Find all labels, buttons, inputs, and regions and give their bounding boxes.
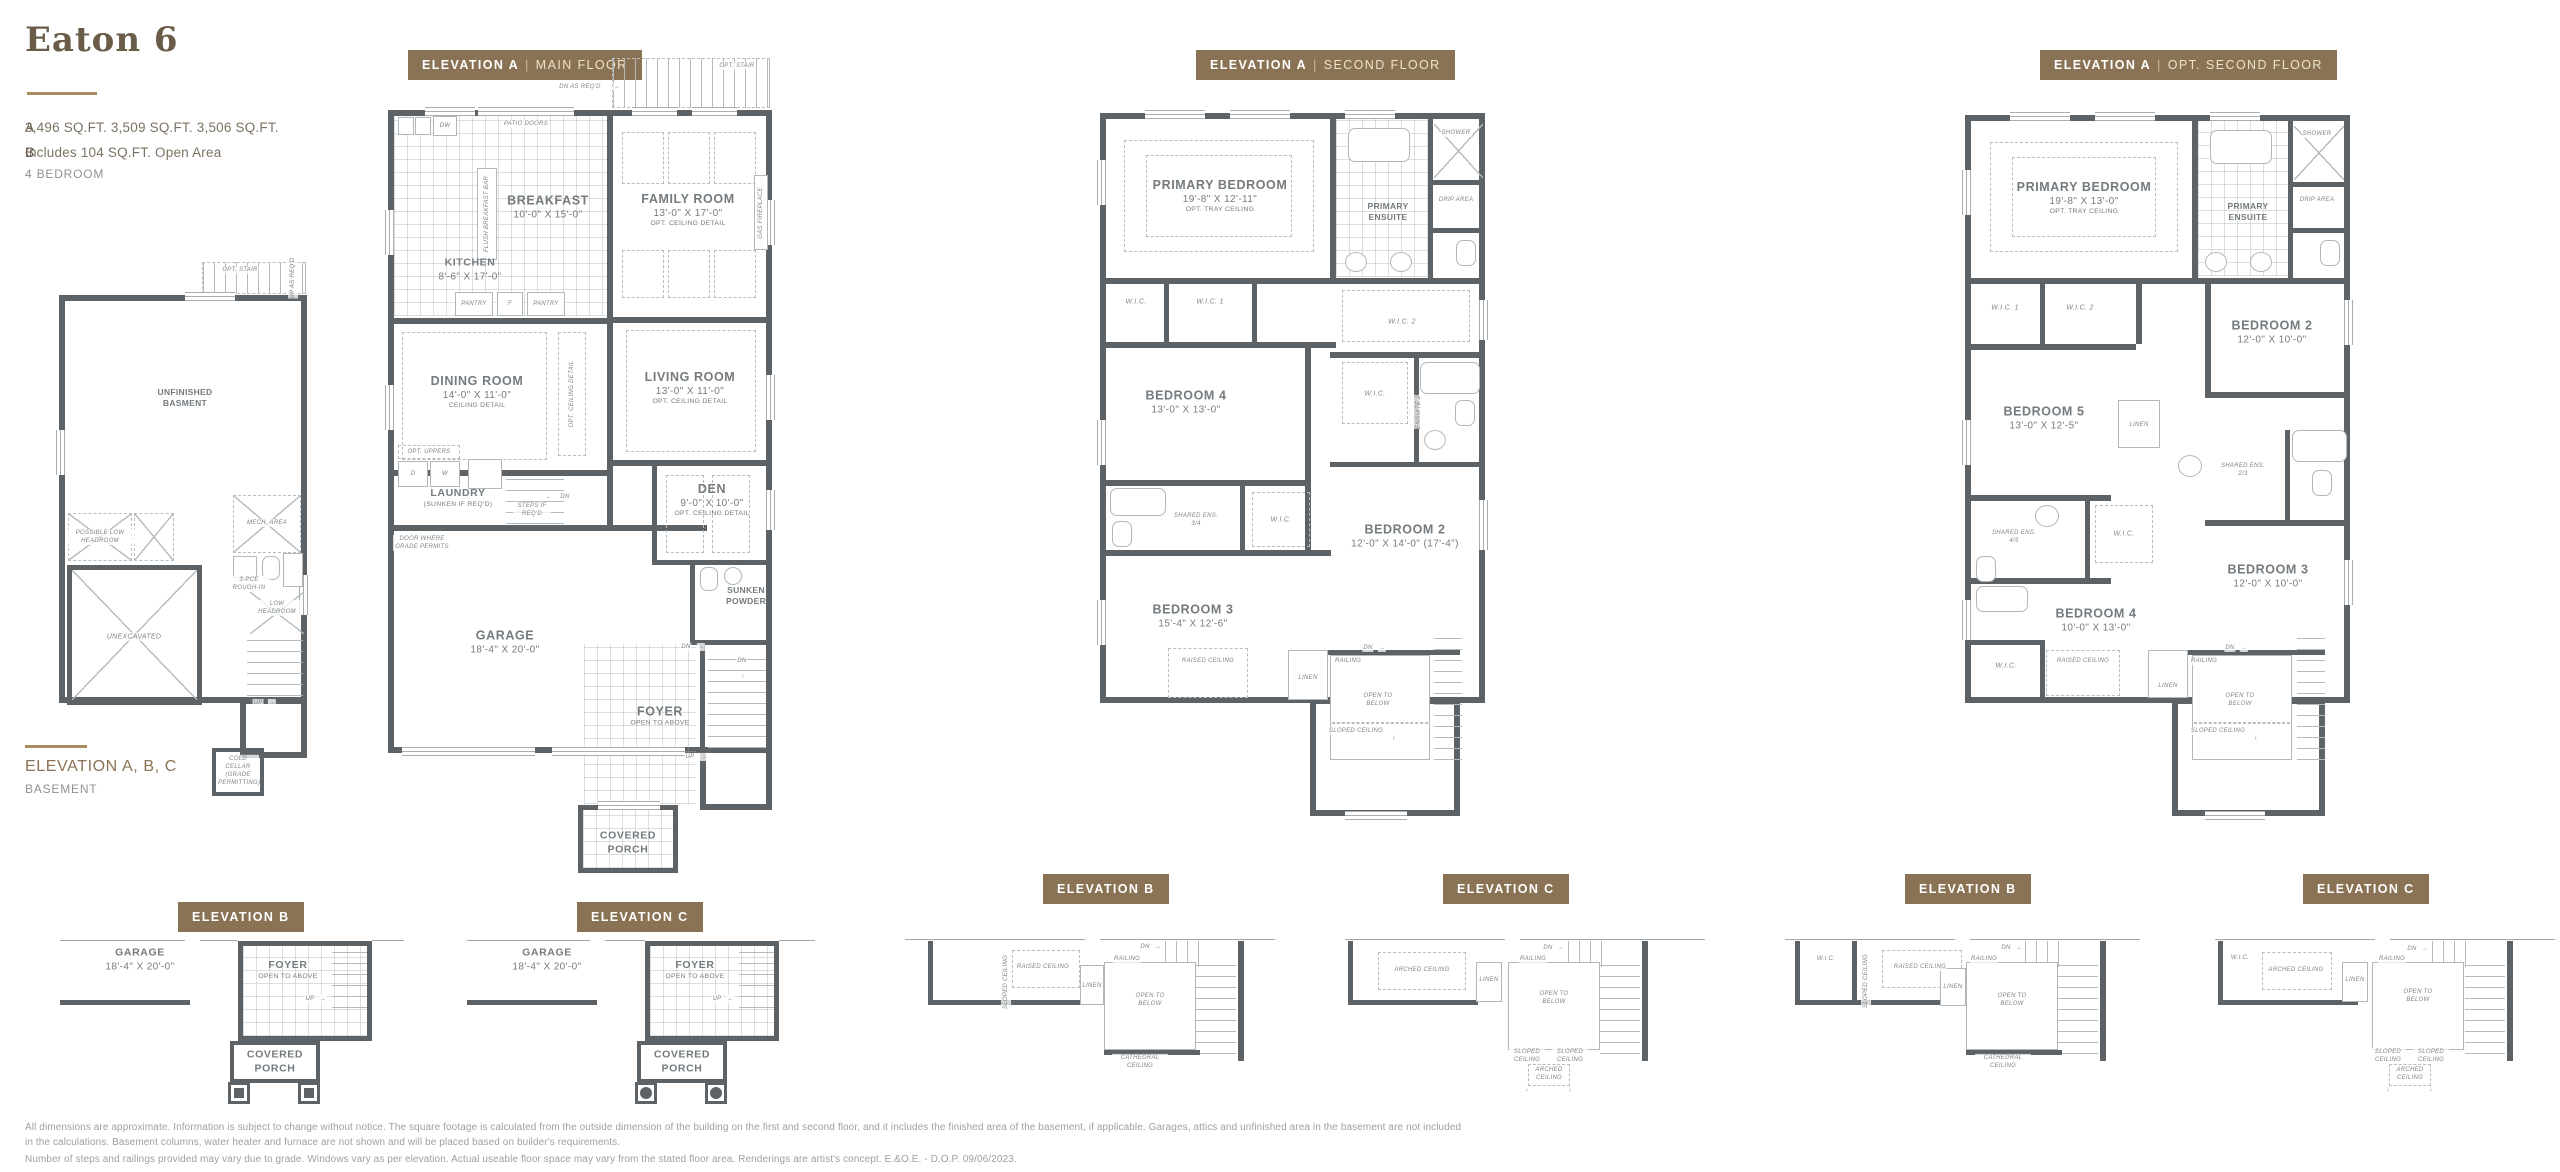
wall bbox=[1240, 486, 1245, 553]
toilet-icon bbox=[1455, 400, 1475, 426]
low-headroom-hatch bbox=[134, 513, 174, 561]
room-dims: 10'-0" X 13'-0" bbox=[2055, 622, 2136, 635]
room-den: DEN9'-0" X 10'-0"OPT. CEILING DETAIL bbox=[674, 481, 749, 519]
wic1-label: W.I.C. 1 bbox=[1990, 303, 2019, 312]
drip-area-label: DRIP AREA bbox=[2299, 196, 2336, 204]
title-divider bbox=[27, 92, 97, 95]
drip-area-label: DRIP AREA bbox=[1438, 196, 1475, 204]
room-note: OPT. CEILING DETAIL bbox=[674, 510, 749, 519]
arrow-right-icon: → bbox=[613, 83, 621, 91]
linen-label: LINEN bbox=[1297, 674, 1318, 682]
ceiling-coffer bbox=[714, 132, 756, 184]
railing-label: RAILING bbox=[2378, 955, 2406, 963]
wall bbox=[2218, 941, 2223, 1003]
room-name: BEDROOM 4 bbox=[1145, 387, 1226, 403]
washer-label: W bbox=[441, 470, 449, 478]
spec-b-value: 3,509 SQ.FT. bbox=[111, 120, 193, 135]
linen-top-label: LINEN bbox=[2128, 421, 2149, 429]
raised-ceiling-label: RAISED CEILING bbox=[2056, 657, 2110, 665]
spec-c-label: C bbox=[25, 141, 35, 166]
wall bbox=[60, 1000, 190, 1005]
arrow-down-icon: ↓ bbox=[1391, 733, 1397, 742]
garage-door bbox=[552, 747, 685, 756]
open-below-label: OPEN TO BELOW bbox=[1350, 692, 1406, 708]
room-name: GARAGE bbox=[105, 947, 174, 961]
up-label: UP bbox=[253, 699, 264, 707]
room-name: DEN bbox=[674, 481, 749, 497]
ground-line bbox=[60, 940, 185, 941]
raised-ceiling-box bbox=[1168, 648, 1248, 698]
window bbox=[185, 292, 235, 301]
wall bbox=[928, 941, 933, 1003]
page-title: Eaton 6 bbox=[25, 20, 179, 60]
ceiling-coffer bbox=[668, 132, 710, 184]
steps-label: STEPS IF REQ'D bbox=[513, 502, 551, 518]
room-laundry: LAUNDRY(SUNKEN IF REQ'D) bbox=[424, 487, 493, 509]
sink-icon bbox=[2035, 505, 2059, 527]
room-garage: GARAGE18'-4" X 20'-0" bbox=[512, 947, 581, 974]
room-note: OPT. CEILING DETAIL bbox=[645, 398, 736, 407]
wall bbox=[1348, 1000, 1478, 1005]
wall bbox=[1106, 550, 1331, 556]
closet-box bbox=[1342, 290, 1470, 342]
window bbox=[385, 210, 394, 255]
caption-elevations: ELEVATION A, B, C bbox=[25, 758, 177, 776]
low-headroom-label: LOW HEADROOM bbox=[254, 600, 300, 616]
wic-low-label: W.I.C. bbox=[1995, 661, 2018, 670]
wall bbox=[394, 525, 707, 531]
room-dims: 18'-4" X 20'-0" bbox=[470, 644, 539, 657]
sloped-ceiling-label: SLOPED CEILING bbox=[1552, 1048, 1588, 1064]
disclaimer-paragraph: All dimensions are approximate. Informat… bbox=[25, 1120, 1465, 1150]
room-name: LIVING ROOM bbox=[645, 369, 736, 385]
wall bbox=[1852, 941, 1857, 1003]
wall bbox=[652, 560, 772, 565]
toilet-icon bbox=[1112, 521, 1132, 547]
dn-label: DN bbox=[2224, 644, 2235, 652]
wall bbox=[2288, 228, 2350, 233]
wall bbox=[1106, 278, 1479, 284]
dryer-label: D bbox=[410, 470, 417, 478]
unexcavated-label: UNEXCAVATED bbox=[106, 632, 163, 641]
entry-door bbox=[598, 801, 660, 810]
arrow-right-icon: → bbox=[726, 995, 734, 1003]
room-name: FOYER bbox=[665, 959, 724, 973]
room-name: PRIMARY BEDROOM bbox=[1153, 177, 1288, 193]
room-name: BEDROOM 3 bbox=[2227, 561, 2308, 577]
wall bbox=[1252, 284, 1257, 344]
square-footage: A 3,496 SQ.FT. B 3,509 SQ.FT. C 3,506 SQ… bbox=[25, 116, 279, 166]
arched-ceiling-label: ARCHED CEILING bbox=[2392, 1066, 2428, 1082]
stairs bbox=[2058, 958, 2098, 1054]
dn-label: DN bbox=[736, 657, 747, 665]
cathedral-ceiling-label: CATHEDRAL CEILING bbox=[1112, 1054, 1168, 1070]
toilet-icon bbox=[1976, 556, 1996, 582]
arched-ceiling-label: ARCHED CEILING bbox=[1531, 1066, 1567, 1082]
spec-a-value: 3,496 SQ.FT. bbox=[25, 120, 107, 135]
arrow-down-icon: ↓ bbox=[2385, 1086, 2390, 1094]
room-note: OPEN TO ABOVE bbox=[665, 972, 724, 981]
wic1-label: W.I.C. 1 bbox=[1195, 297, 1224, 306]
wall bbox=[2085, 495, 2090, 580]
badge-elevation-c-second: ELEVATION C bbox=[1443, 874, 1569, 904]
room-name: FAMILY ROOM bbox=[641, 191, 734, 207]
room-note: OPT. TRAY CEILING bbox=[2017, 208, 2152, 217]
room-name: COVERED PORCH bbox=[642, 1048, 722, 1075]
wall bbox=[1164, 284, 1169, 344]
room-dims: 13'-0" X 12'-5" bbox=[2003, 420, 2084, 433]
bathtub-icon bbox=[283, 553, 303, 587]
wall bbox=[1795, 941, 1800, 1003]
wic-low-label: W.I.C. bbox=[1270, 515, 1293, 524]
up-label: UP bbox=[685, 753, 696, 761]
window bbox=[56, 430, 65, 475]
bathtub-icon bbox=[1976, 586, 2028, 612]
stairs bbox=[739, 946, 774, 1008]
patio-door bbox=[478, 107, 574, 116]
wall bbox=[2288, 121, 2293, 278]
dn-label: DN bbox=[1542, 944, 1553, 952]
ground-line bbox=[1520, 939, 1705, 940]
room-name: PRIMARY ENSUITE bbox=[2220, 201, 2276, 223]
room-kitchen: KITCHEN8'-6" X 17'-0" bbox=[438, 257, 501, 284]
wall bbox=[613, 460, 772, 466]
room-name: BEDROOM 3 bbox=[1152, 601, 1233, 617]
badge-elevation-c-opt: ELEVATION C bbox=[2303, 874, 2429, 904]
badge-elevation-c-main: ELEVATION C bbox=[577, 902, 703, 932]
sink-icon bbox=[1390, 252, 1412, 272]
ground-line bbox=[1970, 939, 2140, 940]
ceiling-coffer bbox=[622, 250, 664, 298]
room-dims: 9'-0" X 10'-0" bbox=[674, 497, 749, 510]
window bbox=[1345, 811, 1407, 820]
ground-line bbox=[1785, 939, 1955, 940]
stairs bbox=[332, 946, 367, 1008]
column-core bbox=[234, 1088, 244, 1098]
opt-ceiling-label: OPT. CEILING DETAIL bbox=[567, 360, 577, 427]
wic-label: W.I.C. bbox=[1125, 297, 1148, 306]
room-dims: 12'-0" X 14'-0" (17'-4") bbox=[1351, 538, 1459, 551]
bathtub-icon bbox=[1420, 362, 1480, 394]
opt-uppers-label: OPT. UPPERS bbox=[406, 448, 451, 456]
sloped-ceiling-label: SLOPED CEILING bbox=[1861, 954, 1871, 1008]
mech-area-label: MECH. AREA bbox=[246, 519, 288, 527]
room-note: OPT. CEILING DETAIL bbox=[641, 220, 734, 229]
sink-icon bbox=[2178, 455, 2202, 477]
up-label: UP bbox=[305, 995, 316, 1003]
bathtub-icon bbox=[1110, 488, 1166, 516]
open-area-note: Includes 104 SQ.FT. Open Area bbox=[25, 145, 221, 160]
wall bbox=[1971, 278, 2344, 284]
ceiling-coffer bbox=[668, 250, 710, 298]
arrow-right-icon: → bbox=[2015, 944, 2023, 952]
window bbox=[632, 107, 677, 116]
linen-label: LINEN bbox=[1942, 983, 1963, 991]
wall bbox=[1330, 352, 1485, 358]
sink-icon bbox=[415, 117, 431, 135]
wic-label: W.I.C. bbox=[1816, 955, 1836, 963]
room-dims: 19'-8" X 13'-0" bbox=[2017, 195, 2152, 208]
room-bed3: BEDROOM 312'-0" X 10'-0" bbox=[2227, 561, 2308, 590]
door-grade-label: DOOR WHERE GRADE PERMITS bbox=[393, 535, 451, 551]
toilet-icon bbox=[1456, 240, 1476, 266]
dn-label: DN bbox=[2000, 944, 2011, 952]
window bbox=[1145, 110, 1205, 119]
window bbox=[766, 375, 775, 420]
room-name: BEDROOM 2 bbox=[2231, 317, 2312, 333]
room-powder: SUNKEN POWDER bbox=[721, 585, 771, 607]
arrow-right-icon: → bbox=[268, 699, 276, 707]
room-dims: 15'-4" X 12'-6" bbox=[1152, 618, 1233, 631]
pantry-label: PANTRY bbox=[532, 300, 559, 308]
ground-line bbox=[2215, 939, 2375, 940]
room-covered-porch: COVERED PORCH bbox=[588, 829, 668, 856]
room-name: COVERED PORCH bbox=[235, 1048, 315, 1075]
room-living: LIVING ROOM13'-0" X 11'-0"OPT. CEILING D… bbox=[645, 369, 736, 407]
porch-column-icon bbox=[635, 1082, 657, 1104]
arched-ceiling-label: ARCHED CEILING bbox=[2267, 966, 2324, 974]
arrow-left-icon: ← bbox=[545, 493, 553, 501]
badge-elevation: ELEVATION A bbox=[1210, 58, 1307, 72]
sloped-ceiling-line bbox=[2194, 722, 2290, 724]
arrow-down-icon: ↓ bbox=[2253, 733, 2259, 742]
badge-main-floor: ELEVATION A|MAIN FLOOR bbox=[408, 50, 642, 80]
room-note: OPEN TO ABOVE bbox=[630, 720, 689, 729]
wall bbox=[1428, 119, 1433, 279]
open-below-label: OPEN TO BELOW bbox=[2212, 692, 2268, 708]
wall bbox=[467, 1000, 597, 1005]
shared-ens-label: SHARED ENS. 3/4 bbox=[1172, 512, 1220, 528]
window bbox=[425, 107, 475, 116]
stairs bbox=[247, 632, 303, 696]
arrow-right-icon: → bbox=[1378, 644, 1386, 652]
arrow-right-icon: → bbox=[2421, 945, 2429, 953]
room-name: BEDROOM 4 bbox=[2055, 605, 2136, 621]
bathtub-icon bbox=[2292, 430, 2347, 462]
column-core bbox=[640, 1087, 652, 1099]
room-dims: 13'-0" X 17'-0" bbox=[641, 207, 734, 220]
wall bbox=[1106, 480, 1311, 486]
wall bbox=[394, 318, 607, 324]
badge-second-floor: ELEVATION A|SECOND FLOOR bbox=[1196, 50, 1455, 80]
shared-ens23-label: SHARED ENS. 2/3 bbox=[2218, 462, 2268, 478]
badge-elevation-b-main: ELEVATION B bbox=[178, 902, 304, 932]
room-family: FAMILY ROOM13'-0" X 17'-0"OPT. CEILING D… bbox=[641, 191, 734, 229]
wall bbox=[1238, 941, 1244, 1061]
raised-ceiling-label: RAISED CEILING bbox=[1181, 657, 1235, 665]
dn-label: DN bbox=[1139, 943, 1150, 951]
wall bbox=[2040, 284, 2045, 344]
cathedral-ceiling-label: CATHEDRAL CEILING bbox=[1975, 1054, 2031, 1070]
linen-label: LINEN bbox=[1081, 982, 1102, 990]
stairs bbox=[2465, 958, 2505, 1054]
ground-line bbox=[605, 940, 645, 941]
sink-icon bbox=[2250, 252, 2272, 272]
arrow-right-icon: → bbox=[700, 753, 708, 761]
wall bbox=[1428, 180, 1485, 185]
room-name: LAUNDRY bbox=[424, 487, 493, 501]
wall bbox=[2136, 284, 2142, 344]
up-as-reqd-label: UP AS REQ'D bbox=[288, 257, 298, 298]
railing-label: RAILING bbox=[1970, 955, 1998, 963]
room-primary: PRIMARY BEDROOM19'-8" X 12'-11"OPT. TRAY… bbox=[1153, 177, 1288, 215]
sink-icon bbox=[1424, 430, 1446, 450]
open-below-label: OPEN TO BELOW bbox=[1528, 990, 1580, 1006]
badge-floor: SECOND FLOOR bbox=[1324, 58, 1441, 72]
arrow-down-icon: ↓ bbox=[740, 672, 745, 680]
dn-label: DN bbox=[2406, 945, 2417, 953]
room-dims: 8'-6" X 17'-0" bbox=[438, 270, 501, 283]
ground-line bbox=[1100, 939, 1275, 940]
room-foyer: FOYEROPEN TO ABOVE bbox=[258, 959, 317, 981]
room-note: OPT. TRAY CEILING bbox=[1153, 206, 1288, 215]
badge-elevation: ELEVATION A bbox=[2054, 58, 2151, 72]
wic2-label: W.I.C. 2 bbox=[1387, 317, 1416, 326]
railing-label: RAILING bbox=[1519, 955, 1547, 963]
ceiling-coffer bbox=[714, 250, 756, 298]
wall bbox=[1642, 941, 1648, 1061]
wall bbox=[1348, 941, 1353, 1003]
shower-label: SHOWER bbox=[2302, 130, 2333, 138]
window bbox=[2344, 300, 2353, 345]
badge-separator: | bbox=[519, 58, 536, 72]
porch-column-icon bbox=[298, 1082, 320, 1104]
wic-label: W.I.C. bbox=[2230, 954, 2250, 962]
window bbox=[1097, 420, 1106, 465]
room-dims: 12'-0" X 10'-0" bbox=[2231, 334, 2312, 347]
room-name: GARAGE bbox=[470, 627, 539, 643]
wall bbox=[1971, 640, 2045, 645]
open-to-below-box bbox=[2372, 962, 2464, 1050]
room-dims: 18'-4" X 20'-0" bbox=[105, 960, 174, 973]
window bbox=[2210, 112, 2260, 121]
room-dining: DINING ROOM14'-0" X 11'-0"CEILING DETAIL bbox=[431, 373, 524, 411]
wall bbox=[2100, 941, 2106, 1061]
room-garage: GARAGE18'-4" X 20'-0" bbox=[105, 947, 174, 974]
room-dims: 10'-0" X 15'-0" bbox=[507, 209, 589, 222]
railing-label: RAILING bbox=[1334, 657, 1362, 665]
room-primary-ensuite: PRIMARY ENSUITE bbox=[1360, 201, 1416, 223]
stairs bbox=[1600, 958, 1640, 1054]
sloped-ceiling-label: SLOPED CEILING bbox=[2190, 727, 2246, 735]
ground-line bbox=[905, 939, 1085, 940]
window bbox=[1962, 420, 1971, 465]
room-dims: 14'-0" X 11'-0" bbox=[431, 389, 524, 402]
sloped-ceiling-label: SLOPED CEILING bbox=[2370, 1048, 2406, 1064]
column-core bbox=[304, 1088, 314, 1098]
arched-ceiling-label: ARCHED CEILING bbox=[1393, 966, 1450, 974]
badge-elevation-b-opt: ELEVATION B bbox=[1905, 874, 2031, 904]
badge-opt-second-floor: ELEVATION A|OPT. SECOND FLOOR bbox=[2040, 50, 2337, 80]
wall bbox=[2040, 640, 2045, 700]
window bbox=[1962, 170, 1971, 215]
window bbox=[1097, 160, 1106, 205]
window bbox=[1097, 600, 1106, 645]
wall bbox=[1971, 344, 2136, 350]
room-primary: PRIMARY BEDROOM19'-8" X 13'-0"OPT. TRAY … bbox=[2017, 179, 2152, 217]
arrow-right-icon: → bbox=[2240, 644, 2248, 652]
room-bed5: BEDROOM 513'-0" X 12'-5" bbox=[2003, 403, 2084, 432]
wall bbox=[1971, 495, 2111, 501]
badge-elevation-b-second: ELEVATION B bbox=[1043, 874, 1169, 904]
ensuite2-label: ENSUITE 2 bbox=[1414, 395, 1424, 429]
window bbox=[2205, 811, 2265, 820]
railing-label: RAILING bbox=[2190, 657, 2218, 665]
window bbox=[1345, 110, 1395, 119]
arrow-down-icon: ↓ bbox=[1524, 1086, 1529, 1094]
pantry-label: PANTRY bbox=[460, 300, 487, 308]
open-below-label: OPEN TO BELOW bbox=[2392, 988, 2444, 1004]
caption-basement: BASEMENT bbox=[25, 782, 97, 796]
shower-label: SHOWER bbox=[1441, 129, 1472, 137]
room-name: KITCHEN bbox=[438, 257, 501, 271]
room-name: SUNKEN POWDER bbox=[721, 585, 771, 607]
room-name: FOYER bbox=[258, 959, 317, 973]
room-name: BEDROOM 2 bbox=[1351, 521, 1459, 537]
caption-divider bbox=[25, 745, 87, 748]
wall bbox=[2205, 284, 2211, 392]
shared-ens45-label: SHARED ENS. 4/5 bbox=[1989, 529, 2039, 545]
window bbox=[766, 490, 775, 530]
ground-line bbox=[467, 940, 590, 941]
linen-closet bbox=[2148, 650, 2188, 698]
porch-column-icon bbox=[705, 1082, 727, 1104]
cold-cellar-label: COLD CELLAR (GRADE PERMITTING) bbox=[217, 755, 259, 787]
sloped-ceiling-line bbox=[1332, 722, 1428, 724]
room-breakfast: BREAKFAST10'-0" X 15'-0" bbox=[507, 192, 589, 221]
arrow-right-icon: → bbox=[319, 995, 327, 1003]
dn-label: DN bbox=[1362, 644, 1373, 652]
open-below-label: OPEN TO BELOW bbox=[1986, 992, 2038, 1008]
ground-line bbox=[2390, 939, 2555, 940]
wall bbox=[2285, 430, 2290, 520]
room-note: OPEN TO ABOVE bbox=[258, 972, 317, 981]
laundry-sink-icon bbox=[468, 459, 502, 489]
room-dims: 12'-0" X 10'-0" bbox=[2227, 578, 2308, 591]
ground-line bbox=[372, 940, 404, 941]
arrow-down-icon: ↓ bbox=[2428, 1086, 2433, 1094]
stairs bbox=[1434, 632, 1462, 760]
ceiling-coffer bbox=[622, 132, 664, 184]
room-dims: 13'-0" X 13'-0" bbox=[1145, 404, 1226, 417]
flush-bar-label: FLUSH BREAKFAST BAR bbox=[482, 176, 492, 252]
wall bbox=[2288, 182, 2350, 187]
badge-separator: | bbox=[1307, 58, 1324, 72]
raised-ceiling-label: RAISED CEILING bbox=[1893, 963, 1947, 971]
rough-in-label: 3-PCE ROUGH-IN bbox=[228, 576, 270, 592]
room-dims: 18'-4" X 20'-0" bbox=[512, 960, 581, 973]
sink-icon bbox=[398, 117, 414, 135]
wall bbox=[2205, 392, 2350, 398]
wic-mid-label: W.I.C. bbox=[1364, 389, 1387, 398]
badge-elevation: ELEVATION A bbox=[422, 58, 519, 72]
window bbox=[2095, 112, 2155, 121]
badge-separator: | bbox=[2151, 58, 2168, 72]
room-dims: 13'-0" X 11'-0" bbox=[645, 385, 736, 398]
room-note: (SUNKEN IF REQ'D) bbox=[424, 500, 493, 509]
badge-floor: OPT. SECOND FLOOR bbox=[2168, 58, 2323, 72]
room-note: CEILING DETAIL bbox=[431, 402, 524, 411]
room-unfinished-basement: UNFINISHED BASMENT bbox=[145, 387, 225, 409]
window bbox=[385, 385, 394, 430]
room-name: PRIMARY ENSUITE bbox=[1360, 201, 1416, 223]
fridge-label: F bbox=[507, 300, 513, 308]
wall bbox=[1106, 342, 1336, 348]
wic2-label: W.I.C. 2 bbox=[2065, 303, 2094, 312]
sink-icon bbox=[1345, 252, 1367, 272]
room-name: FOYER bbox=[630, 703, 689, 719]
window bbox=[2344, 560, 2353, 605]
